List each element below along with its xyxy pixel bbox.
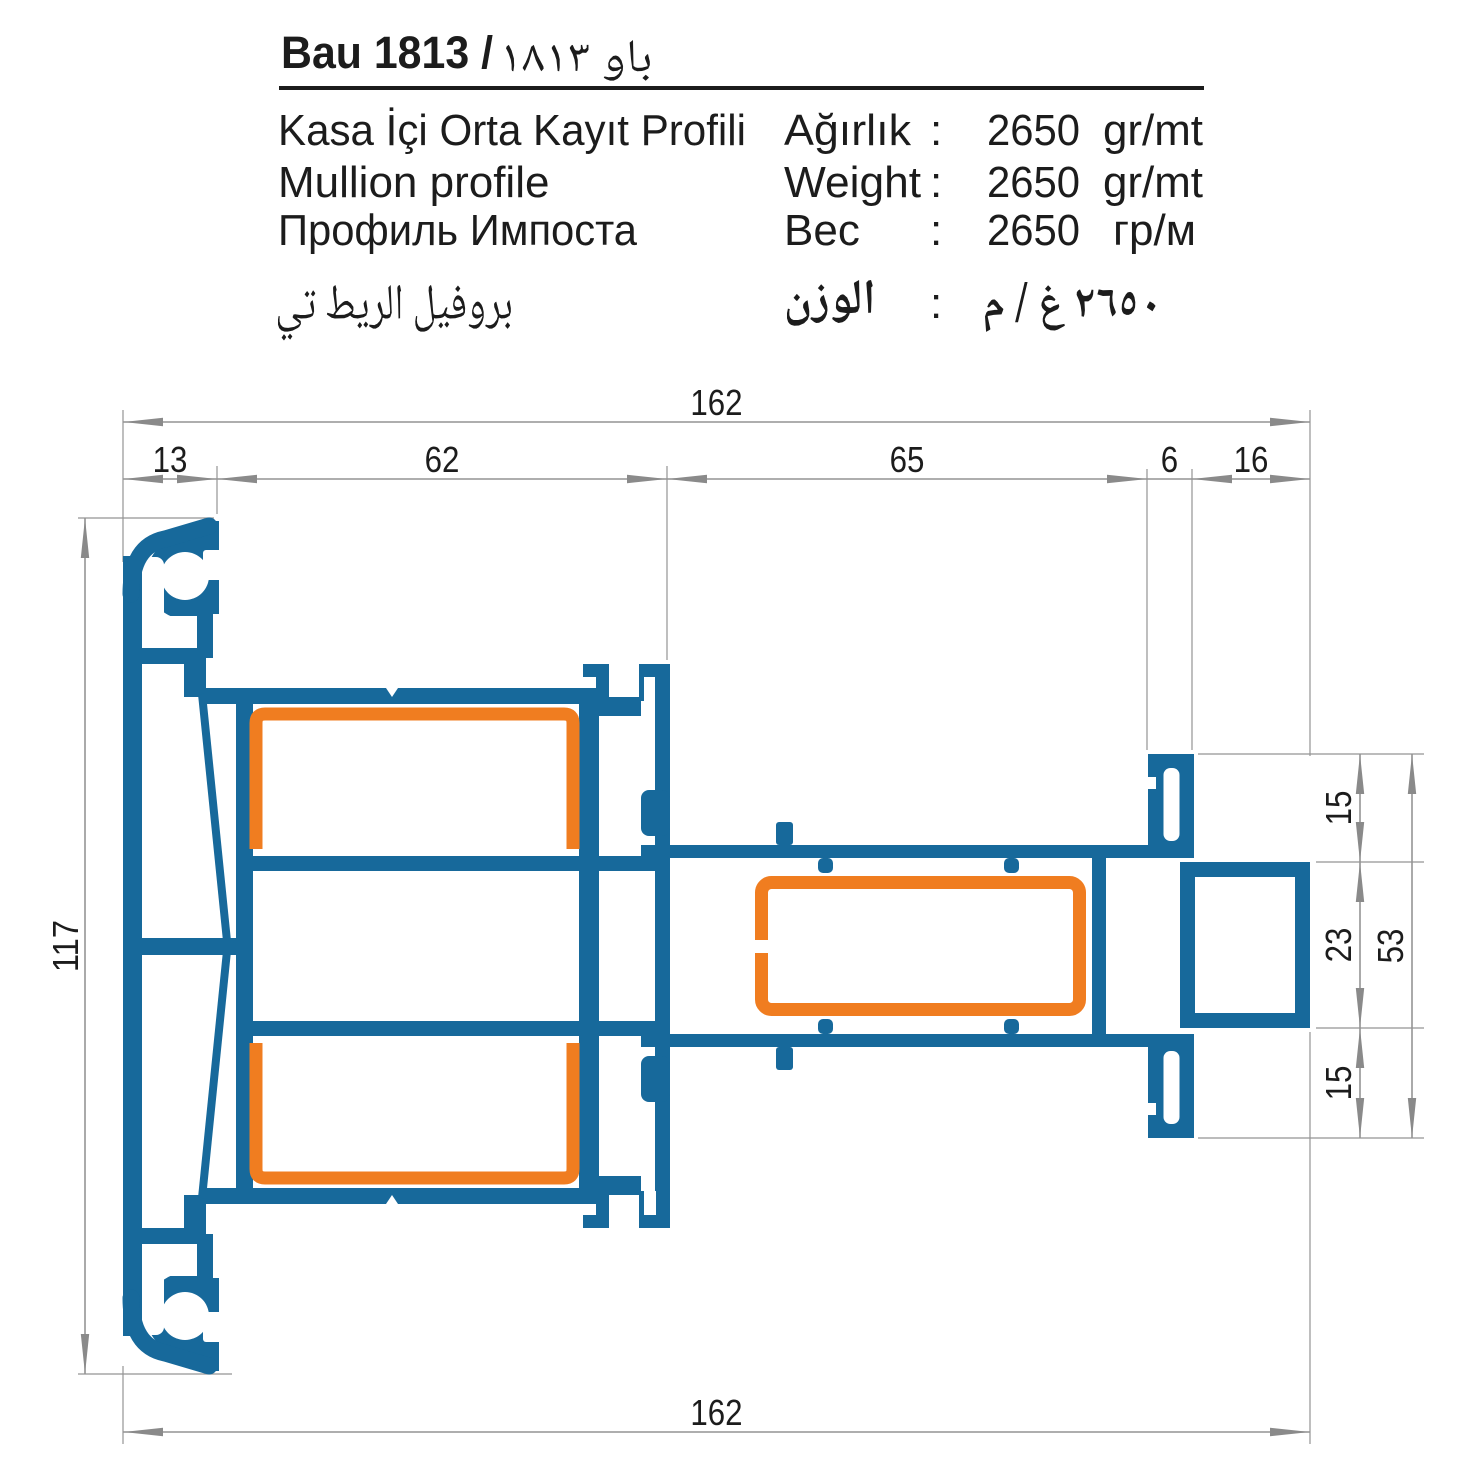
svg-text:162: 162: [690, 382, 742, 423]
svg-text:Weight: Weight: [784, 158, 921, 207]
svg-text:Kasa İçi Orta Kayıt Profili: Kasa İçi Orta Kayıt Profili: [278, 106, 746, 155]
svg-text:65: 65: [890, 439, 925, 480]
svg-text::: :: [930, 158, 942, 207]
svg-text::: :: [930, 206, 942, 255]
svg-text:62: 62: [425, 439, 460, 480]
svg-text:162: 162: [690, 1392, 742, 1433]
svg-text::: :: [930, 279, 942, 328]
svg-text:13: 13: [153, 439, 188, 480]
svg-text:2650: 2650: [987, 106, 1080, 155]
svg-text:гр/м: гр/м: [1113, 206, 1196, 255]
svg-text:gr/mt: gr/mt: [1103, 106, 1203, 155]
svg-text:15: 15: [1318, 791, 1359, 826]
svg-text:6: 6: [1161, 439, 1178, 480]
svg-text:2650: 2650: [987, 206, 1080, 255]
svg-text:Профиль Импоста: Профиль Импоста: [278, 206, 638, 255]
svg-text:Bau 1813 /: Bau 1813 /: [281, 27, 493, 78]
svg-text::: :: [930, 106, 942, 155]
svg-text:23: 23: [1318, 928, 1359, 963]
svg-text:Mullion profile: Mullion profile: [278, 158, 549, 207]
svg-text:Ağırlık: Ağırlık: [784, 106, 912, 155]
svg-text:117: 117: [45, 920, 86, 972]
svg-text:Вес: Вес: [784, 206, 860, 255]
svg-text:53: 53: [1370, 929, 1411, 964]
svg-text:16: 16: [1234, 439, 1269, 480]
svg-text:gr/mt: gr/mt: [1103, 158, 1203, 207]
svg-text:15: 15: [1318, 1066, 1359, 1101]
svg-text:2650: 2650: [987, 158, 1080, 207]
